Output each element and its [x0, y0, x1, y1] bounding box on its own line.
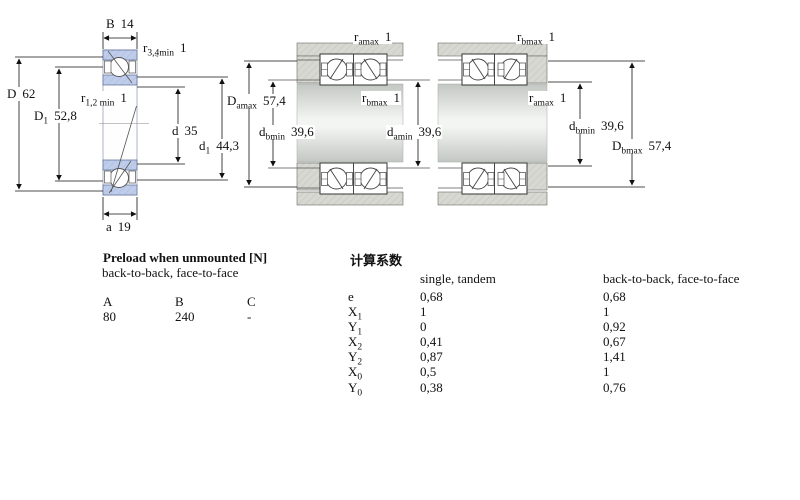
factor-row-label: Y0	[348, 380, 362, 396]
factor-row-label: Y2	[348, 349, 362, 365]
bearing-datasheet-page: B14 r3,4min1 D62 r1,2 min1 D152,8 d35 d1…	[0, 0, 800, 500]
dim-label-a: a19	[105, 220, 132, 234]
preload-table-title: Preload when unmounted [N]	[103, 250, 267, 266]
factors-col-header-back-to-back: back-to-back, face-to-face	[603, 271, 739, 287]
preload-col-header-A: A	[103, 294, 112, 310]
factor-value-paired: 1	[603, 304, 610, 320]
dim-label-d: d35	[171, 124, 199, 138]
factor-value-single: 0,5	[420, 364, 436, 380]
preload-table-subtitle: back-to-back, face-to-face	[102, 265, 238, 281]
factor-value-paired: 0,68	[603, 289, 626, 305]
factor-value-paired: 0,67	[603, 334, 626, 350]
ball-top	[110, 58, 129, 77]
factor-value-paired: 0,92	[603, 319, 626, 335]
dim-label-dbmin-mid: dbmin39,6	[258, 125, 315, 139]
preload-value-C: -	[247, 309, 251, 325]
factor-row-label: X1	[348, 304, 362, 320]
factor-value-single: 0,87	[420, 349, 443, 365]
dim-label-r34min: r3,4min1	[142, 41, 188, 55]
factor-value-single: 0	[420, 319, 427, 335]
factor-row-label: e	[348, 289, 354, 305]
factor-value-single: 0,41	[420, 334, 443, 350]
dim-label-ramax-right: ramax1	[528, 91, 567, 105]
dim-label-ramax-mid: ramax1	[353, 30, 392, 44]
factor-value-paired: 0,76	[603, 380, 626, 396]
dim-label-D1: D152,8	[33, 109, 78, 123]
dim-label-rbmax-mid: rbmax1	[361, 91, 401, 105]
factors-col-header-single-tandem: single, tandem	[420, 271, 496, 287]
single-bearing-section-drawing	[99, 50, 158, 195]
preload-col-header-C: C	[247, 294, 256, 310]
factor-row-label: X2	[348, 334, 362, 350]
dim-label-dbmin-right: dbmin39,6	[568, 119, 625, 133]
factor-value-paired: 1	[603, 364, 610, 380]
factor-value-single: 0,68	[420, 289, 443, 305]
dim-label-Dbmax: Dbmax57,4	[611, 139, 672, 153]
dim-label-r12min: r1,2 min1	[80, 91, 128, 105]
factor-value-single: 0,38	[420, 380, 443, 396]
dim-label-B: B14	[105, 17, 135, 31]
factor-value-single: 1	[420, 304, 427, 320]
preload-value-A: 80	[103, 309, 116, 325]
dim-label-D: D62	[6, 87, 36, 101]
factors-table-title: 计算系数	[350, 250, 402, 269]
dim-label-d1: d144,3	[198, 139, 240, 153]
factor-value-paired: 1,41	[603, 349, 626, 365]
bearing-drawings-canvas	[0, 0, 800, 245]
factor-row-label: Y1	[348, 319, 362, 335]
preload-col-header-B: B	[175, 294, 184, 310]
face-to-face-pair-drawing	[438, 43, 547, 205]
dim-label-rbmax-right: rbmax1	[516, 30, 556, 44]
preload-value-B: 240	[175, 309, 195, 325]
factor-row-label: X0	[348, 364, 362, 380]
dim-label-Damax: Damax57,4	[226, 94, 287, 108]
dim-label-damin: damin39,6	[386, 125, 442, 139]
